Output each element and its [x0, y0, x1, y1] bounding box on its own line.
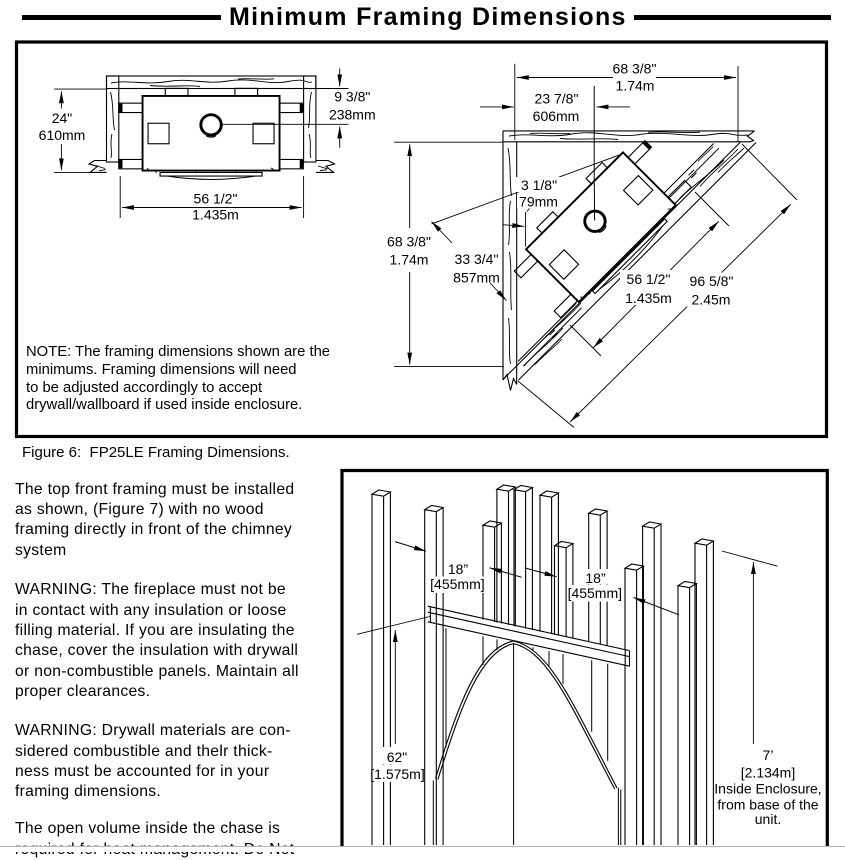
svg-text:unit.: unit. — [755, 811, 781, 827]
svg-text:7’: 7’ — [763, 747, 774, 763]
svg-text:[1.575m]: [1.575m] — [370, 766, 424, 782]
svg-text:from base of the: from base of the — [717, 797, 818, 813]
svg-text:[455mm]: [455mm] — [568, 585, 622, 601]
svg-text:Inside Enclosure,: Inside Enclosure, — [714, 781, 821, 797]
svg-text:62": 62" — [387, 749, 408, 765]
svg-text:[2.134m]: [2.134m] — [741, 764, 795, 780]
svg-text:[455mm]: [455mm] — [430, 576, 484, 592]
svg-text:18”: 18” — [448, 561, 469, 577]
svg-text:18”: 18” — [585, 570, 606, 586]
